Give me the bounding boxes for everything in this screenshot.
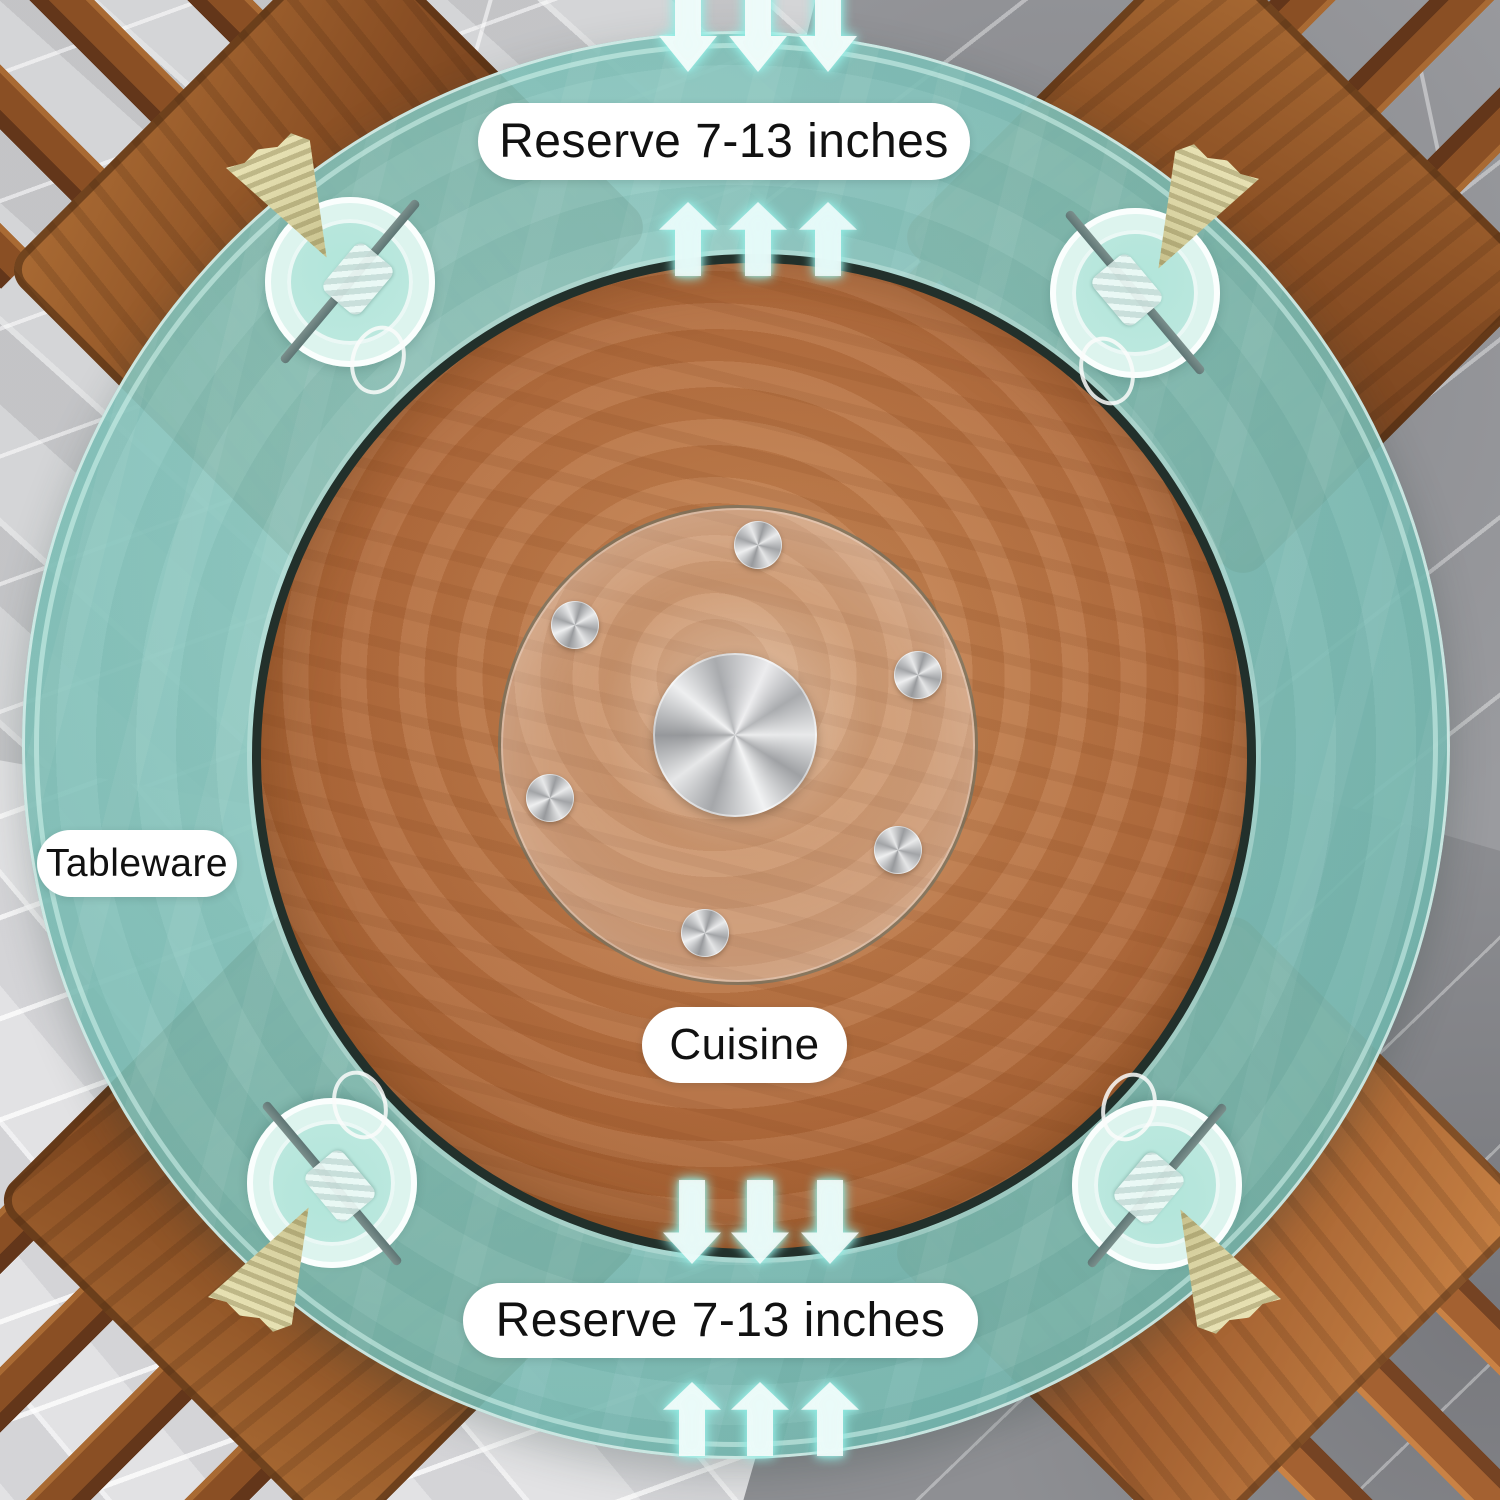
- arrow-down-icon: [799, 0, 857, 72]
- arrow-down-icon: [663, 1180, 721, 1264]
- label-cuisine: Cuisine: [642, 1007, 847, 1083]
- bearing-rivet: [551, 601, 599, 649]
- turntable-bearing-hub: [653, 653, 817, 817]
- arrow-down-icon: [731, 1180, 789, 1264]
- bearing-rivet: [526, 774, 574, 822]
- bearing-rivet: [874, 826, 922, 874]
- arrow-up-icon: [799, 202, 857, 276]
- place-setting-top-right: [1050, 208, 1220, 378]
- product-diagram-lazy-susan-table: Reserve 7-13 inches Reserve 7-13 inches …: [0, 0, 1500, 1500]
- arrow-up-icon: [663, 1382, 721, 1456]
- place-setting-bottom-right: [1072, 1100, 1242, 1270]
- arrow-up-icon: [729, 202, 787, 276]
- label-reserve-top: Reserve 7-13 inches: [478, 103, 970, 180]
- arrow-up-icon: [731, 1382, 789, 1456]
- place-setting-bottom-left: [247, 1098, 417, 1268]
- arrow-down-icon: [729, 0, 787, 72]
- arrow-down-icon: [801, 1180, 859, 1264]
- label-reserve-bottom: Reserve 7-13 inches: [463, 1283, 978, 1358]
- bearing-rivet: [894, 651, 942, 699]
- bearing-rivet: [681, 909, 729, 957]
- arrow-down-icon: [659, 0, 717, 72]
- place-setting-top-left: [265, 197, 435, 367]
- arrow-up-icon: [801, 1382, 859, 1456]
- arrow-up-icon: [659, 202, 717, 276]
- bearing-rivet: [734, 521, 782, 569]
- label-tableware: Tableware: [37, 830, 237, 897]
